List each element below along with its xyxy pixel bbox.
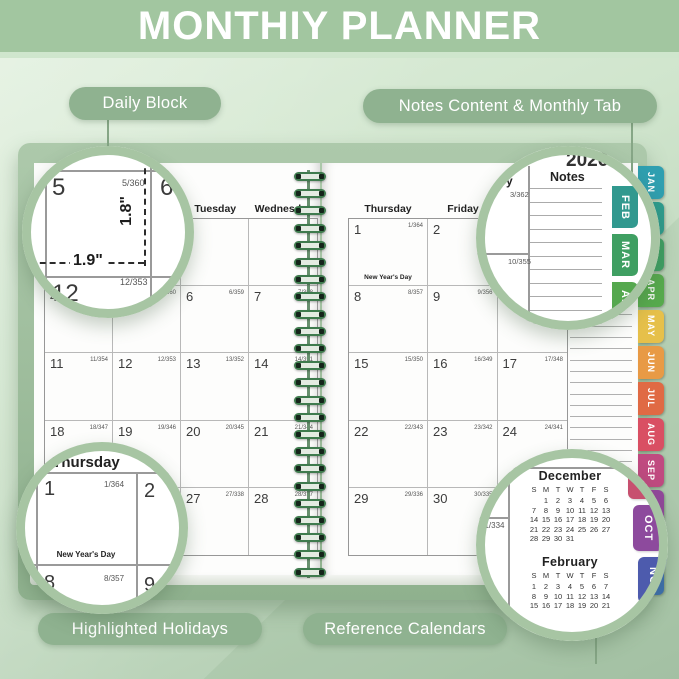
mini-day: 21 (528, 525, 540, 535)
day-number: 19 (118, 424, 132, 439)
day-of-year: 12/353 (158, 357, 176, 363)
mini-day: 14 (528, 515, 540, 525)
mini-day (528, 496, 540, 506)
spiral-coil (294, 241, 326, 250)
spiral-coil (294, 482, 326, 491)
month-tab-label: SEP (637, 463, 649, 488)
mini-day: 16 (552, 515, 564, 525)
connector-reference (595, 634, 597, 664)
calendar-cell: 1515/350 (349, 353, 428, 420)
notes-rule-line (530, 229, 602, 230)
month-tab-label: JUN (646, 352, 656, 373)
mini-day: 8 (540, 506, 552, 516)
spiral-coil (294, 344, 326, 353)
calendar-cell: 2222/343 (349, 421, 428, 488)
notes-rule-line (570, 439, 632, 440)
day-number: 1 (354, 222, 361, 237)
mini-day: 1 (540, 496, 552, 506)
mini-day: 27 (600, 525, 612, 535)
mini-day: 3 (564, 496, 576, 506)
day-of-year: 1/364 (104, 480, 124, 489)
month-tab-label: MAY (646, 315, 656, 337)
spiral-coil (294, 327, 326, 336)
mini-calendar-week: 14151617181920 (528, 515, 612, 525)
day-number: 28 (254, 491, 268, 506)
cell-divider (476, 253, 528, 255)
day-of-year: 1/364 (408, 223, 423, 229)
callout-reference: Reference Calendars (303, 613, 507, 645)
column-divider (508, 465, 510, 625)
mini-day: 8 (528, 592, 540, 602)
magnifier-notes: 2026 y Notes 3/362 10/355 FEBMARAPRMAY (476, 146, 660, 330)
grid-line (150, 146, 152, 318)
grid-line (22, 276, 194, 278)
mini-day (600, 534, 612, 544)
day-of-year: 31/334 (480, 521, 504, 530)
spiral-coil (294, 533, 326, 542)
month-tab-label: JAN (646, 172, 656, 193)
day-number: 15 (354, 356, 368, 371)
callout-notes-tab: Notes Content & Monthly Tab (363, 89, 657, 123)
notes-header: Notes (550, 170, 585, 184)
day-of-year: 10/355 (508, 257, 531, 266)
mini-day: 11 (564, 592, 576, 602)
width-dimension-label: 1.9" (70, 252, 106, 270)
mini-dow-label: S (528, 485, 540, 495)
magnified-month-tab-nov: NOV (638, 557, 668, 603)
mini-dow-label: M (540, 571, 552, 581)
mini-day: 26 (588, 525, 600, 535)
notes-rule-line (570, 382, 632, 383)
day-of-year: 6/359 (229, 290, 244, 296)
mini-dow-label: W (564, 485, 576, 495)
month-tab-label: FEB (619, 195, 631, 220)
mini-day: 2 (540, 582, 552, 592)
mini-day: 30 (552, 534, 564, 544)
mini-day: 18 (564, 601, 576, 611)
mini-calendar-week: 28293031 (528, 534, 612, 544)
mini-day: 29 (540, 534, 552, 544)
day-number: 16 (433, 356, 447, 371)
day-number: 13 (186, 356, 200, 371)
callout-notes-tab-label: Notes Content & Monthly Tab (399, 97, 621, 116)
magnified-month-tab-feb: FEB (612, 186, 638, 228)
mini-dow-label: S (600, 571, 612, 581)
notes-rule-line (530, 269, 602, 270)
notes-rule-line (570, 416, 632, 417)
month-tab-aug: AUG (638, 418, 664, 451)
day-of-year: 12/353 (120, 277, 148, 287)
calendar-cell: 88/357 (349, 286, 428, 353)
notes-rule-line (530, 323, 602, 324)
day-of-year: 27/338 (226, 492, 244, 498)
callout-holidays: Highlighted Holidays (38, 613, 262, 645)
mini-calendar-week: 891011121314 (528, 592, 612, 602)
weekday-header: Thursday (26, 454, 146, 471)
day-number: 21 (254, 424, 268, 439)
page-title: MONTHIY PLANNER (138, 4, 541, 49)
notes-rule-line (570, 360, 632, 361)
banner: MONTHIY PLANNER (0, 0, 679, 52)
planner-product-image: MONTHIY PLANNER TuesdayWednesday44/36155… (0, 0, 679, 679)
mini-dow-label: F (588, 571, 600, 581)
mini-dow-label: T (576, 485, 588, 495)
magnifier-holidays: Thursday 1 1/364 2 New Year's Day 8 8/35… (16, 442, 188, 614)
month-tab-jul: JUL (638, 382, 664, 415)
mini-day: 7 (528, 506, 540, 516)
notes-rule-line (570, 427, 632, 428)
mini-dow-label: M (540, 485, 552, 495)
day-number: 11 (50, 356, 64, 371)
day-of-year: 18/347 (90, 425, 108, 431)
callout-daily-block: Daily Block (69, 87, 221, 120)
calendar-cell: 1717/348 (498, 353, 568, 420)
day-number: 6 (160, 174, 173, 202)
day-number: 30 (433, 491, 447, 506)
spiral-coil (294, 430, 326, 439)
day-number: 12 (52, 280, 79, 308)
day-number: 20 (186, 424, 200, 439)
notes-rule-line (570, 394, 632, 395)
day-of-year: 11/354 (90, 357, 108, 363)
spiral-coil (294, 361, 326, 370)
mini-day: 7 (600, 582, 612, 592)
mini-day: 14 (600, 592, 612, 602)
day-number: 5 (52, 174, 65, 202)
mini-dow-label: F (588, 485, 600, 495)
mini-dow-label: S (528, 571, 540, 581)
day-of-year: 8/357 (104, 574, 124, 583)
mini-calendar-week: 21222324252627 (528, 525, 612, 535)
mini-day: 16 (540, 601, 552, 611)
notes-rule-line (530, 256, 602, 257)
day-of-year: 13/352 (226, 357, 244, 363)
day-of-year: 20/345 (226, 425, 244, 431)
notes-rule-line (570, 348, 632, 349)
mini-dow-label: T (576, 571, 588, 581)
calendar-cell: 2323/342 (428, 421, 498, 488)
year-label: 2026 (566, 150, 608, 172)
day-number: 6 (186, 289, 193, 304)
grid-line (45, 146, 47, 318)
spiral-coil (294, 224, 326, 233)
spiral-coil (294, 292, 326, 301)
spiral-coil (294, 464, 326, 473)
day-number: 12 (118, 356, 132, 371)
day-number: 27 (186, 491, 200, 506)
notes-rule-line (530, 215, 602, 216)
spiral-coil (294, 378, 326, 387)
day-number: 2 (433, 222, 440, 237)
mini-day: 10 (552, 592, 564, 602)
callout-reference-label: Reference Calendars (324, 620, 486, 639)
month-tab-label: MAR (619, 241, 631, 269)
day-number: 2 (144, 480, 155, 503)
grid-line (136, 472, 138, 614)
mini-day: 15 (528, 601, 540, 611)
height-dimension-line (144, 158, 146, 266)
day-of-year: 5/360 (122, 178, 145, 188)
spiral-coil (294, 258, 326, 267)
callout-daily-block-label: Daily Block (103, 94, 188, 113)
day-number: 1 (44, 478, 55, 501)
notes-rule-line (530, 242, 602, 243)
day-of-year: 19/346 (158, 425, 176, 431)
magnified-month-tab-oct: OCT (633, 505, 663, 551)
mini-day: 4 (576, 496, 588, 506)
month-tab-label: APR (619, 290, 631, 316)
mini-day (588, 534, 600, 544)
magnified-month-tab-mar: MAR (612, 234, 638, 276)
day-number: 8 (354, 289, 361, 304)
calendar-cell: 2929/336 (349, 488, 428, 555)
notes-rule-line (570, 405, 632, 406)
month-tab-jun: JUN (638, 346, 664, 379)
month-tab-label: OCT (642, 515, 654, 541)
mini-calendar-week: 1234567 (528, 582, 612, 592)
spiral-coil (294, 516, 326, 525)
spiral-coil (294, 447, 326, 456)
calendar-cell: 2020/345 (181, 421, 249, 488)
mini-dow-label: T (552, 571, 564, 581)
notes-rule-line (570, 337, 632, 338)
day-number: 7 (254, 289, 261, 304)
mini-calendar-week: 78910111213 (528, 506, 612, 516)
cell-divider (476, 320, 528, 322)
mini-day: 4 (564, 582, 576, 592)
mini-day: 15 (540, 515, 552, 525)
spiral-coil (294, 172, 326, 181)
mini-day: 12 (588, 506, 600, 516)
mini-calendar-week: 123456 (528, 496, 612, 506)
grid-line (22, 170, 194, 172)
mini-day: 5 (588, 496, 600, 506)
day-number: 18 (50, 424, 64, 439)
notes-rule-line (570, 371, 632, 372)
day-of-year: 28/337 (295, 492, 313, 498)
day-of-year: 9/356 (477, 290, 492, 296)
mini-calendar-title: December (528, 469, 612, 483)
mini-day: 5 (576, 582, 588, 592)
spiral-coil (294, 499, 326, 508)
calendar-cell: 1313/352 (181, 353, 249, 420)
calendar-cell: 1111/354 (45, 353, 113, 420)
day-of-year: 17/348 (545, 357, 563, 363)
day-number: 23 (433, 424, 447, 439)
day-number: 9 (144, 574, 155, 597)
day-of-year: 16/349 (474, 357, 492, 363)
day-number: 9 (433, 289, 440, 304)
month-tab-label: AUG (646, 423, 656, 446)
mini-day: 13 (588, 592, 600, 602)
day-of-year: 15/350 (405, 357, 423, 363)
mini-calendar-week: 15161718192021 (528, 601, 612, 611)
calendar-cell: 11/364New Year's Day (349, 219, 428, 286)
mini-day: 9 (540, 592, 552, 602)
callout-holidays-label: Highlighted Holidays (72, 620, 228, 639)
calendar-cell: 1212/353 (113, 353, 181, 420)
magnifier-reference: 31/334 DecemberSMTWTFS123456789101112131… (476, 449, 668, 641)
calendar-cell: 66/359 (181, 286, 249, 353)
magnifier-daily-block: 61 5 5/360 6 1.8" 1.9" 12 12/353 (22, 146, 194, 318)
notes-rule-line (530, 202, 602, 203)
month-tab-label: JUL (646, 388, 656, 408)
mini-day: 6 (588, 582, 600, 592)
mini-day: 28 (528, 534, 540, 544)
month-tab-label: NOV (647, 567, 659, 594)
calendar-cell: 1616/349 (428, 353, 498, 420)
mini-day: 1 (528, 582, 540, 592)
spiral-coil (294, 275, 326, 284)
spiral-coil (294, 189, 326, 198)
spiral-coil (294, 206, 326, 215)
day-number: 14 (254, 356, 268, 371)
holiday-label: New Year's Day (349, 274, 427, 281)
connector-notes-tab (631, 121, 633, 177)
mini-dow-label: T (552, 485, 564, 495)
mini-day: 11 (576, 506, 588, 516)
day-number: 22 (354, 424, 368, 439)
mini-calendar-title: February (528, 555, 612, 569)
mini-day: 12 (576, 592, 588, 602)
holiday-label: New Year's Day (36, 550, 136, 559)
banner-accent-strip (0, 52, 679, 58)
day-of-year: 8/357 (408, 290, 423, 296)
mini-day: 10 (564, 506, 576, 516)
height-dimension-label: 1.8" (118, 194, 136, 228)
day-of-year: 23/342 (474, 425, 492, 431)
mini-day: 31 (564, 534, 576, 544)
mini-day: 2 (552, 496, 564, 506)
saturday-header-partial: y (506, 174, 513, 188)
mini-day: 19 (588, 515, 600, 525)
mini-day: 17 (552, 601, 564, 611)
spiral-coil (294, 568, 326, 577)
mini-day: 20 (600, 515, 612, 525)
notes-rule-line (530, 188, 602, 189)
cell-divider (476, 517, 508, 519)
mini-day: 13 (600, 506, 612, 516)
month-tab-may: MAY (638, 310, 664, 343)
mini-day: 24 (564, 525, 576, 535)
grid-line (36, 472, 38, 614)
day-number: 17 (503, 356, 517, 371)
mini-day: 6 (600, 496, 612, 506)
mini-day: 21 (600, 601, 612, 611)
grid-line (16, 564, 188, 566)
magnified-month-tab-sep: SEP (628, 453, 658, 499)
mini-day: 17 (564, 515, 576, 525)
magnified-month-tab-apr: APR (612, 282, 638, 324)
calendar-cell: 2727/338 (181, 488, 249, 555)
day-number: 29 (354, 491, 368, 506)
spiral-coil (294, 413, 326, 422)
mini-day: 25 (576, 525, 588, 535)
mini-day: 3 (552, 582, 564, 592)
day-of-year: 22/343 (405, 425, 423, 431)
mini-day: 20 (588, 601, 600, 611)
mini-dow-label: S (600, 485, 612, 495)
grid-line (26, 472, 182, 474)
day-number: 24 (503, 424, 517, 439)
mini-calendar-dow: SMTWTFS (528, 571, 612, 581)
day-number: 8 (44, 572, 55, 595)
notes-rule-line (530, 310, 602, 311)
day-header: Thursday (348, 203, 428, 217)
mini-day: 18 (576, 515, 588, 525)
mini-day: 9 (552, 506, 564, 516)
notes-rule-line (530, 296, 602, 297)
mini-day: 23 (552, 525, 564, 535)
day-of-year: 29/336 (405, 492, 423, 498)
mini-dow-label: W (564, 571, 576, 581)
day-of-year-partial: 61 (24, 178, 34, 188)
spiral-coil (294, 310, 326, 319)
mini-calendar-dow: SMTWTFS (528, 485, 612, 495)
mini-day: 19 (576, 601, 588, 611)
mini-day: 22 (540, 525, 552, 535)
day-of-year: 3/362 (510, 190, 529, 199)
notes-rule-line (530, 283, 602, 284)
spiral-coil (294, 396, 326, 405)
day-of-year: 24/341 (545, 425, 563, 431)
spiral-coil (294, 550, 326, 559)
mini-day (576, 534, 588, 544)
